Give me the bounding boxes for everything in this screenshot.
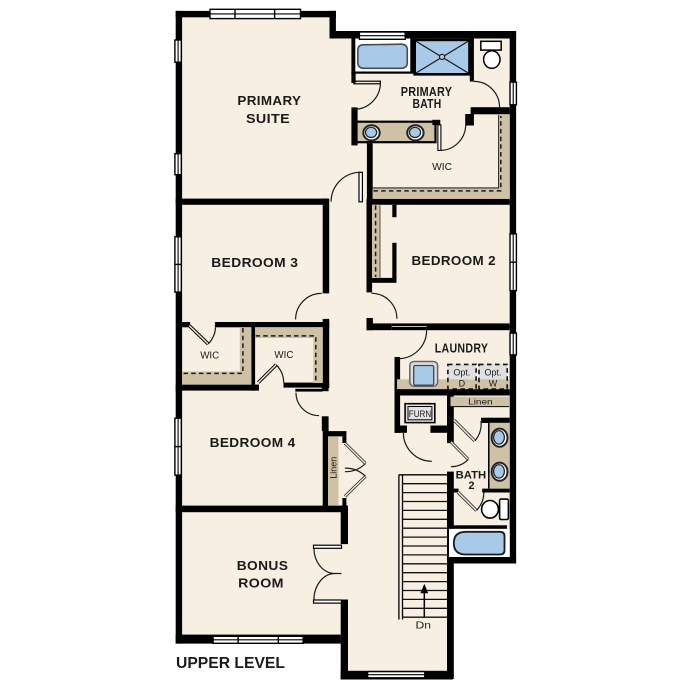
svg-text:Linen: Linen <box>329 457 339 479</box>
svg-text:Linen: Linen <box>468 396 493 406</box>
svg-text:BEDROOM 2: BEDROOM 2 <box>412 253 496 268</box>
svg-text:BATH: BATH <box>412 96 441 111</box>
svg-text:LAUNDRY: LAUNDRY <box>435 340 489 355</box>
svg-text:UPPER LEVEL: UPPER LEVEL <box>176 655 285 672</box>
svg-text:BEDROOM 4: BEDROOM 4 <box>210 435 297 450</box>
svg-text:2: 2 <box>468 480 474 492</box>
svg-text:Opt.: Opt. <box>484 368 501 378</box>
svg-text:ROOM: ROOM <box>238 575 284 590</box>
svg-text:WIC: WIC <box>274 350 293 361</box>
svg-text:Opt.: Opt. <box>453 368 470 378</box>
svg-text:BEDROOM 3: BEDROOM 3 <box>211 255 298 270</box>
svg-text:W: W <box>489 379 498 389</box>
svg-text:PRIMARY: PRIMARY <box>237 93 301 108</box>
svg-text:SUITE: SUITE <box>246 111 290 126</box>
svg-text:BONUS: BONUS <box>237 558 289 573</box>
svg-text:FURN: FURN <box>409 409 432 420</box>
svg-text:WIC: WIC <box>200 351 219 362</box>
svg-text:D: D <box>459 379 466 389</box>
svg-text:WIC: WIC <box>432 162 452 173</box>
svg-text:Dn: Dn <box>416 621 432 632</box>
